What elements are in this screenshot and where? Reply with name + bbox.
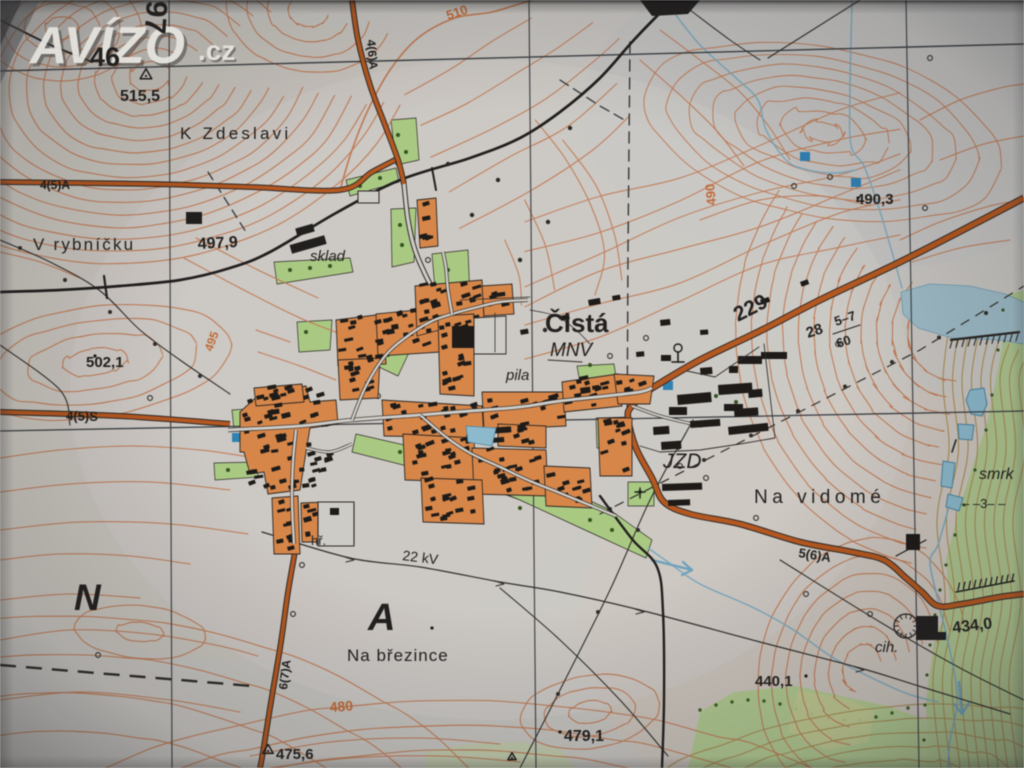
svg-text:97: 97 bbox=[138, 0, 173, 35]
svg-text:46: 46 bbox=[90, 42, 120, 72]
svg-text:.cz: .cz bbox=[198, 35, 235, 66]
